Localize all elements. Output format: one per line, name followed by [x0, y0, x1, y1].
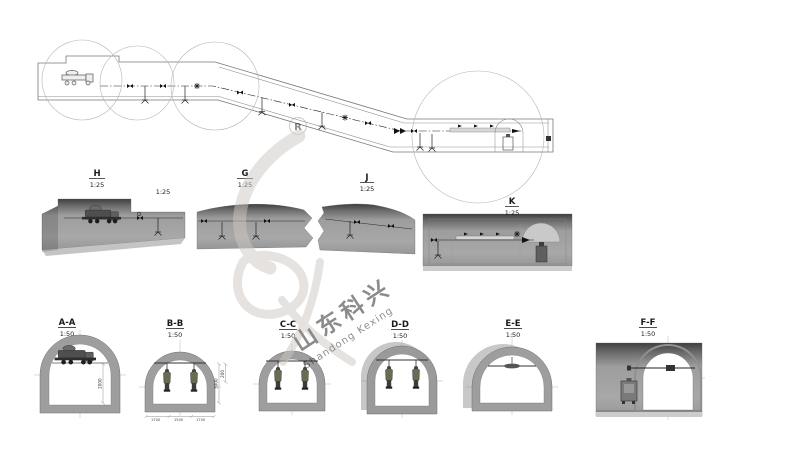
- section-e-label: E-E: [505, 319, 520, 329]
- profile-h: [42, 199, 185, 256]
- drawing-svg: 2000 3000 200 1700 1500 1700: [0, 0, 800, 450]
- section-e: [463, 333, 558, 415]
- section-b-label: B-B: [167, 319, 184, 329]
- registered-letter: R: [294, 122, 302, 133]
- section-f: [596, 336, 705, 420]
- section-c-label: C-C: [280, 320, 296, 330]
- section-d: [361, 340, 443, 418]
- section-b-dims-right: [217, 363, 228, 405]
- plan-symbols: [127, 83, 551, 152]
- section-a-label: A-A: [59, 318, 76, 328]
- profile-h-scale: 1:25: [90, 181, 105, 189]
- section-d-scale: 1:50: [393, 332, 408, 340]
- section-f-label: F-F: [641, 318, 656, 328]
- section-a: 2000: [34, 330, 126, 418]
- section-f-scale: 1:50: [641, 330, 656, 338]
- section-a-scale: 1:50: [60, 330, 75, 338]
- profile-j: [318, 204, 415, 254]
- drawing-canvas: 2000 3000 200 1700 1500 1700: [0, 0, 800, 450]
- profile-h-side-scale: 1:25: [156, 188, 171, 196]
- section-b-dim-bottom-b: 1500: [174, 418, 184, 422]
- section-b-dim-right-b: 200: [220, 370, 225, 378]
- section-b-dim-bottom-c: 1700: [196, 418, 206, 422]
- section-b: 3000 200 1700 1500 1700: [139, 340, 228, 422]
- profile-j-scale: 1:25: [360, 185, 375, 193]
- plan-equipment-box-icon: [503, 134, 513, 150]
- profile-k: [423, 214, 572, 271]
- section-a-dim-label: 2000: [98, 378, 103, 389]
- cabinet-icon: [621, 378, 637, 404]
- detail-circle-2: [100, 46, 174, 120]
- profile-h-label: H: [93, 169, 100, 179]
- section-e-scale: 1:50: [506, 331, 521, 339]
- profile-k-label: K: [509, 197, 516, 207]
- profile-k-scale: 1:25: [505, 209, 520, 217]
- profile-g: [197, 204, 313, 249]
- section-b-dim-bottom-a: 1700: [151, 418, 161, 422]
- plan-truck-icon: [62, 71, 93, 86]
- section-d-label: D-D: [391, 320, 409, 330]
- section-b-scale: 1:50: [168, 331, 183, 339]
- section-b-dim-right-a: 3000: [214, 378, 219, 389]
- profile-j-label: J: [364, 173, 368, 183]
